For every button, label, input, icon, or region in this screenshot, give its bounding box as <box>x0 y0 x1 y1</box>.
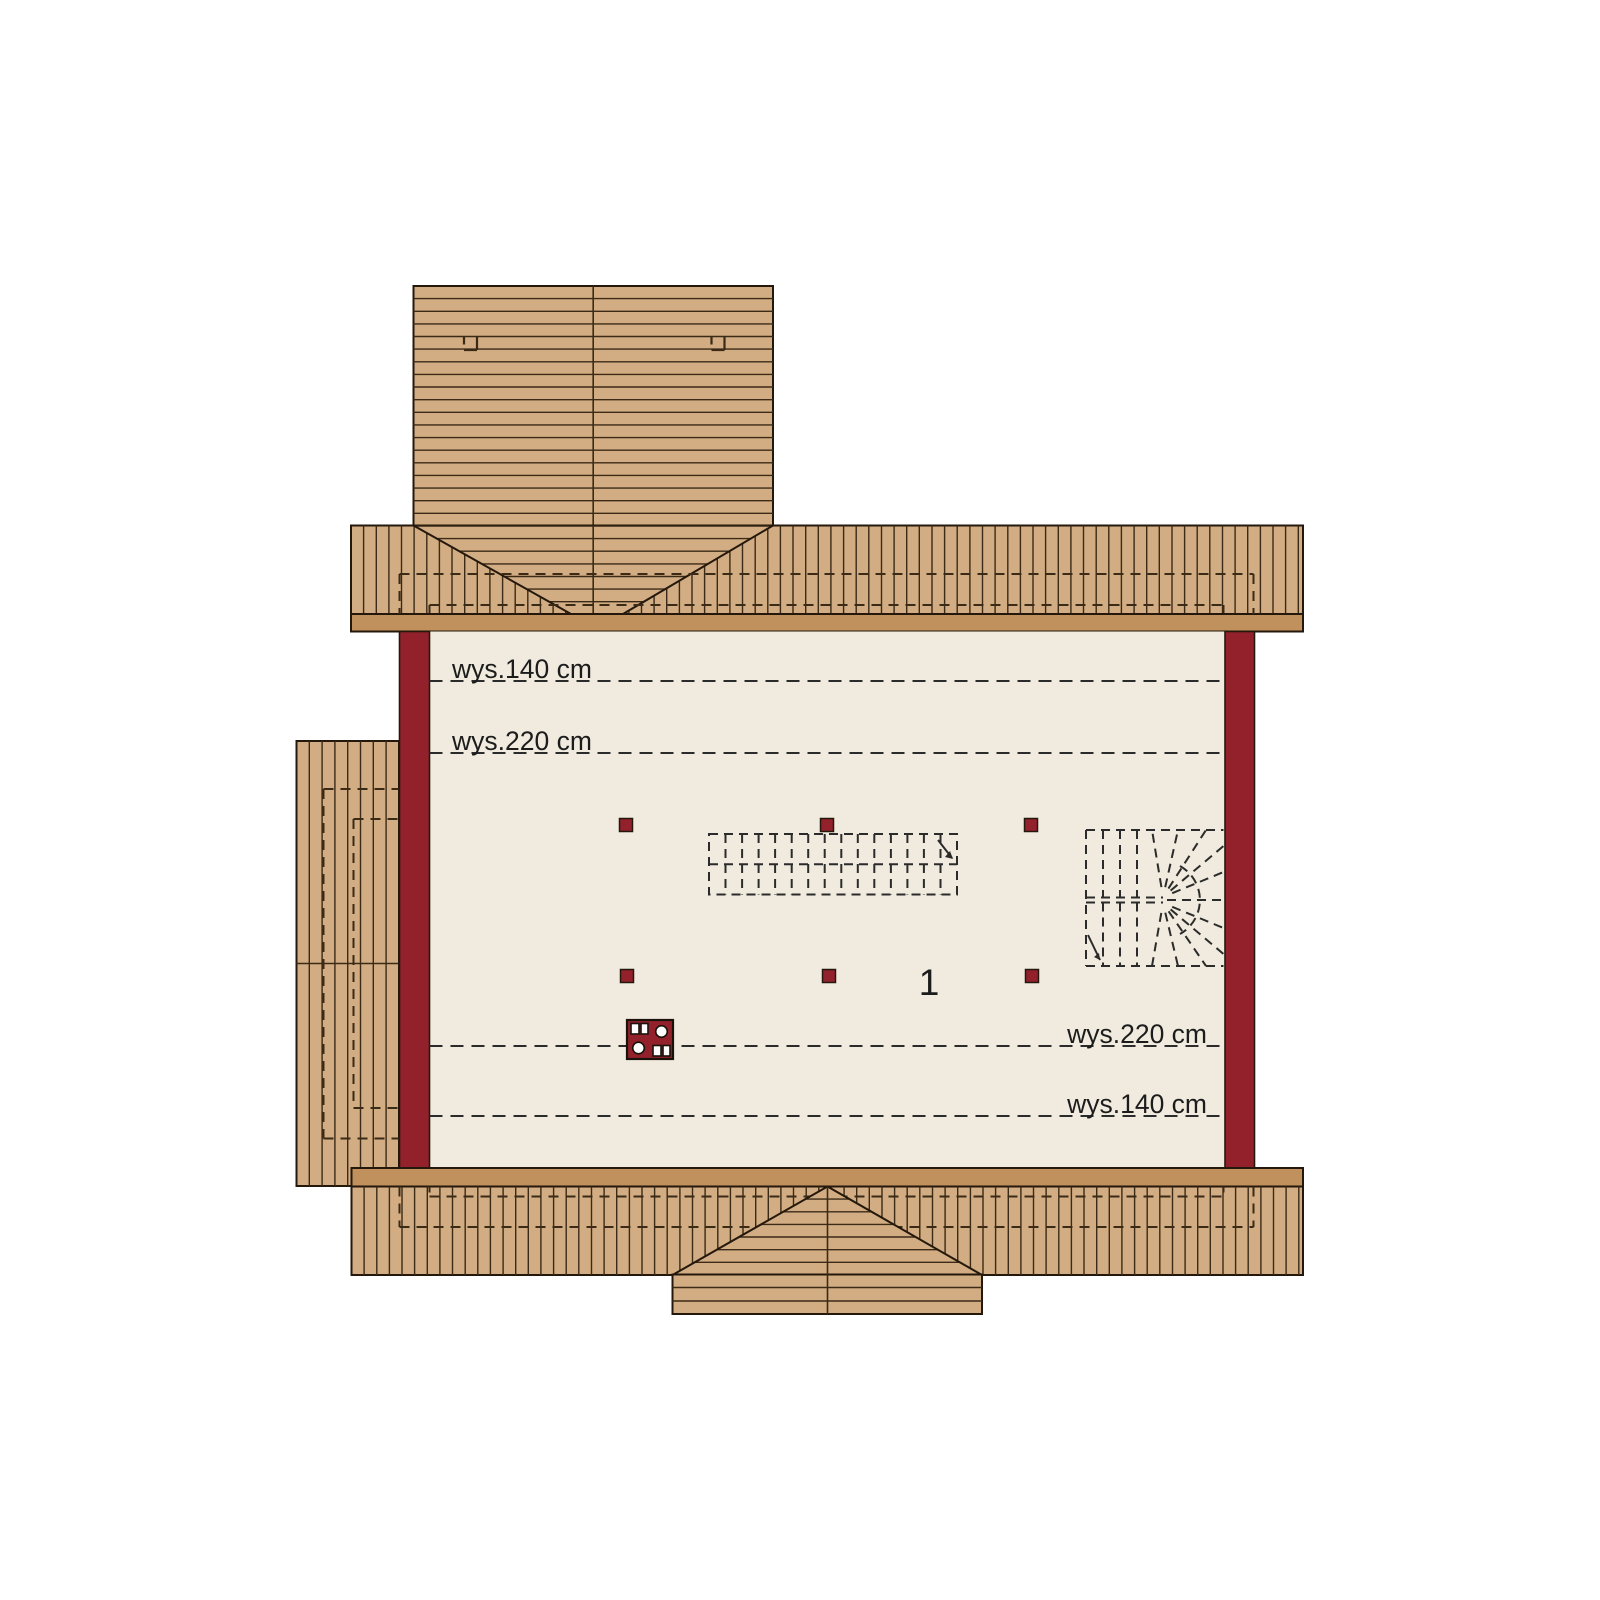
svg-text:wys.140 cm: wys.140 cm <box>451 654 592 684</box>
svg-text:1: 1 <box>919 962 940 1003</box>
svg-text:wys.220 cm: wys.220 cm <box>451 726 592 756</box>
svg-text:wys.220 cm: wys.220 cm <box>1066 1019 1207 1049</box>
svg-text:wys.140 cm: wys.140 cm <box>1066 1089 1207 1119</box>
